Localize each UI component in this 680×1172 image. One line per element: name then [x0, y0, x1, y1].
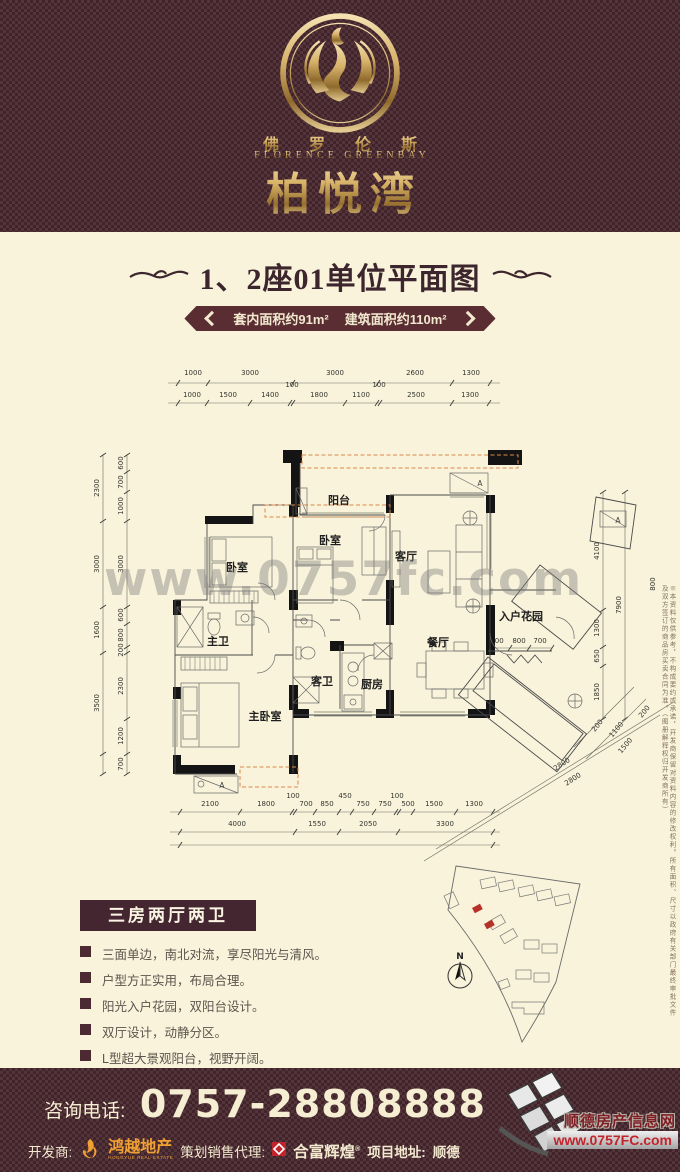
svg-text:600: 600 — [117, 608, 125, 621]
fc-site-name: 顺德房产信息网 — [564, 1110, 676, 1131]
svg-text:3300: 3300 — [436, 820, 454, 828]
fc-site-url: www.0757FC.com — [547, 1131, 678, 1149]
phone-row: 咨询电话: 0757-28808888 — [0, 1082, 530, 1126]
svg-text:4100: 4100 — [593, 542, 601, 560]
feature-item: 阳光入户花园，双阳台设计。 — [80, 996, 420, 1015]
phoenix-logo-icon — [279, 12, 401, 139]
svg-text:2300: 2300 — [117, 677, 125, 695]
svg-text:1300: 1300 — [462, 369, 480, 377]
feature-item: L型超大景观阳台，视野开阔。 — [80, 1048, 420, 1067]
developer-name: 鸿越地产 — [108, 1140, 173, 1156]
svg-text:700: 700 — [117, 475, 125, 488]
svg-text:650: 650 — [593, 649, 601, 662]
dim-line-bottom1 — [170, 809, 500, 815]
developer-label: 开发商: — [28, 1141, 72, 1161]
fc-site-logo: 顺德房产信息网 www.0757FC.com — [505, 1068, 680, 1172]
address-value: 顺德 — [433, 1141, 460, 1161]
svg-text:800: 800 — [117, 628, 125, 641]
room-entry-garden: 入户花园 — [499, 609, 543, 623]
svg-text:700: 700 — [299, 800, 312, 808]
svg-text:200: 200 — [117, 643, 125, 656]
dim-line-left-outer — [100, 453, 106, 776]
credits-row: 开发商: 鸿越地产 HONGYUE REAL ESTATE 策划销售代理: 合 — [28, 1138, 460, 1163]
room-dining: 餐厅 — [426, 635, 449, 649]
disclaimer-text: ※本资料仅供参考，不构成要约或承诺，开发商保留对资料内容的修改权利。所有面积、尺… — [659, 585, 675, 1017]
dim-line-top2 — [168, 400, 500, 406]
svg-text:1500: 1500 — [219, 391, 237, 399]
svg-text:A: A — [219, 781, 225, 790]
svg-text:450: 450 — [338, 792, 351, 800]
svg-text:1000: 1000 — [183, 391, 201, 399]
floor-plan: 1000 3000 3000 2600 1300 1000 1500 1400 … — [0, 355, 680, 885]
feature-item: 户型方正实用，布局合理。 — [80, 970, 420, 989]
interior-area: 套内面积约91m² — [233, 309, 328, 328]
features-box: 三房两厅两卫 三面单边，南北对流，享尽阳光与清风。 户型方正实用，布局合理。 阳… — [80, 900, 420, 1074]
room-kitchen: 厨房 — [361, 677, 383, 691]
svg-text:700: 700 — [533, 637, 546, 645]
room-living: 客厅 — [394, 549, 417, 563]
hongyue-logo-icon — [79, 1138, 101, 1163]
svg-text:3000: 3000 — [117, 555, 125, 573]
svg-text:100: 100 — [285, 381, 298, 389]
address-label: 项目地址: — [367, 1141, 426, 1161]
svg-text:1850: 1850 — [593, 683, 601, 701]
svg-text:1550: 1550 — [308, 820, 326, 828]
svg-text:A: A — [615, 516, 621, 525]
features-title: 三房两厅两卫 — [80, 900, 256, 931]
area-banner: 套内面积约91m² 建筑面积约110m² — [184, 306, 495, 331]
svg-text:3000: 3000 — [241, 369, 259, 377]
highlighted-tower-1 — [472, 904, 483, 914]
dim-line-bottom2 — [170, 829, 500, 835]
svg-text:200: 200 — [590, 718, 605, 733]
banner-left-arrow-icon — [204, 311, 220, 327]
svg-text:1800: 1800 — [257, 800, 275, 808]
svg-text:2600: 2600 — [406, 369, 424, 377]
svg-text:2500: 2500 — [407, 391, 425, 399]
svg-text:1400: 1400 — [261, 391, 279, 399]
svg-text:1100: 1100 — [352, 391, 370, 399]
page-title: 1、2座01单位平面图 — [200, 254, 481, 298]
phone-number: 0757-28808888 — [140, 1082, 486, 1126]
svg-text:1300: 1300 — [465, 800, 483, 808]
flourish-right-icon — [491, 264, 553, 289]
registered-mark: ® — [355, 1145, 360, 1152]
room-master-bedroom: 主卧室 — [249, 709, 282, 723]
svg-text:1000: 1000 — [184, 369, 202, 377]
svg-text:100: 100 — [390, 792, 403, 800]
room-balcony: 阳台 — [328, 493, 350, 507]
agent-label: 策划销售代理: — [180, 1141, 265, 1161]
svg-text:100: 100 — [286, 792, 299, 800]
dim-labels-bottom: 2100 1800 100 700 850 450 750 750 100 50… — [201, 637, 547, 828]
svg-text:2300: 2300 — [93, 479, 101, 497]
svg-text:600: 600 — [117, 456, 125, 469]
svg-text:2050: 2050 — [359, 820, 377, 828]
room-bedroom-top: 卧室 — [319, 533, 341, 547]
svg-text:2100: 2100 — [201, 800, 219, 808]
svg-text:700: 700 — [117, 757, 125, 770]
svg-text:1200: 1200 — [117, 727, 125, 745]
svg-text:3000: 3000 — [93, 555, 101, 573]
svg-text:750: 750 — [356, 800, 369, 808]
svg-text:1600: 1600 — [93, 621, 101, 639]
north-label: N — [456, 952, 464, 962]
feature-item: 三面单边，南北对流，享尽阳光与清风。 — [80, 944, 420, 963]
brand-name: 柏悦湾 — [0, 158, 680, 222]
floorplan-poster: 佛 罗 伦 斯 FLORENCE GREENBAY 柏悦湾 1、2座01单位平面… — [0, 0, 680, 1172]
features-list: 三面单边，南北对流，享尽阳光与清风。 户型方正实用，布局合理。 阳光入户花园，双… — [80, 944, 420, 1067]
svg-text:800: 800 — [512, 637, 525, 645]
svg-text:A: A — [477, 479, 483, 488]
svg-text:800: 800 — [649, 577, 657, 590]
svg-text:850: 850 — [320, 800, 333, 808]
svg-text:1100: 1100 — [608, 720, 626, 739]
room-bedroom-left: 卧室 — [226, 560, 248, 574]
footer: 咨询电话: 0757-28808888 开发商: 鸿越地产 HONGYUE RE… — [0, 1068, 680, 1172]
dim-labels-top: 1000 3000 3000 2600 1300 1000 1500 1400 … — [183, 369, 480, 399]
title-row: 1、2座01单位平面图 — [0, 254, 680, 298]
agent-name: 合富辉煌® — [293, 1140, 360, 1162]
svg-text:3500: 3500 — [93, 694, 101, 712]
feature-item: 双厅设计，动静分区。 — [80, 1022, 420, 1041]
partition-walls — [175, 463, 636, 774]
svg-text:1300: 1300 — [461, 391, 479, 399]
dim-line-top1 — [168, 380, 500, 386]
dim-line-bottom3 — [170, 842, 500, 848]
svg-text:1500: 1500 — [617, 736, 635, 755]
site-plan: N — [428, 852, 668, 1052]
gross-area: 建筑面积约110m² — [345, 309, 447, 328]
svg-text:1000: 1000 — [117, 497, 125, 515]
svg-text:1800: 1800 — [310, 391, 328, 399]
highlighted-tower-2 — [484, 920, 495, 930]
svg-text:1500: 1500 — [425, 800, 443, 808]
svg-text:7900: 7900 — [615, 596, 623, 614]
svg-text:500: 500 — [401, 800, 414, 808]
hefu-logo-icon — [272, 1142, 286, 1159]
header: 佛 罗 伦 斯 FLORENCE GREENBAY 柏悦湾 — [0, 0, 680, 232]
dim-labels-left: 2300 3000 1600 3500 600 700 1000 3000 60… — [93, 456, 125, 770]
svg-text:2800: 2800 — [563, 771, 582, 787]
svg-text:3000: 3000 — [326, 369, 344, 377]
developer-subtitle: HONGYUE REAL ESTATE — [108, 1156, 173, 1161]
balcony-dashed-lines — [240, 455, 518, 787]
svg-text:750: 750 — [378, 800, 391, 808]
svg-text:100: 100 — [372, 381, 385, 389]
room-guest-bath: 客卫 — [310, 674, 333, 688]
developer-logo-text: 鸿越地产 HONGYUE REAL ESTATE — [108, 1140, 173, 1161]
ac-markers: A A A — [219, 479, 621, 790]
flourish-left-icon — [128, 264, 190, 289]
svg-text:4000: 4000 — [228, 820, 246, 828]
room-master-bath: 主卫 — [207, 634, 229, 648]
phone-label: 咨询电话: — [44, 1101, 125, 1122]
banner-right-arrow-icon — [460, 311, 476, 327]
site-buildings — [444, 877, 571, 1014]
diag-dim-lines — [424, 687, 672, 861]
north-compass-icon: N — [448, 952, 472, 988]
